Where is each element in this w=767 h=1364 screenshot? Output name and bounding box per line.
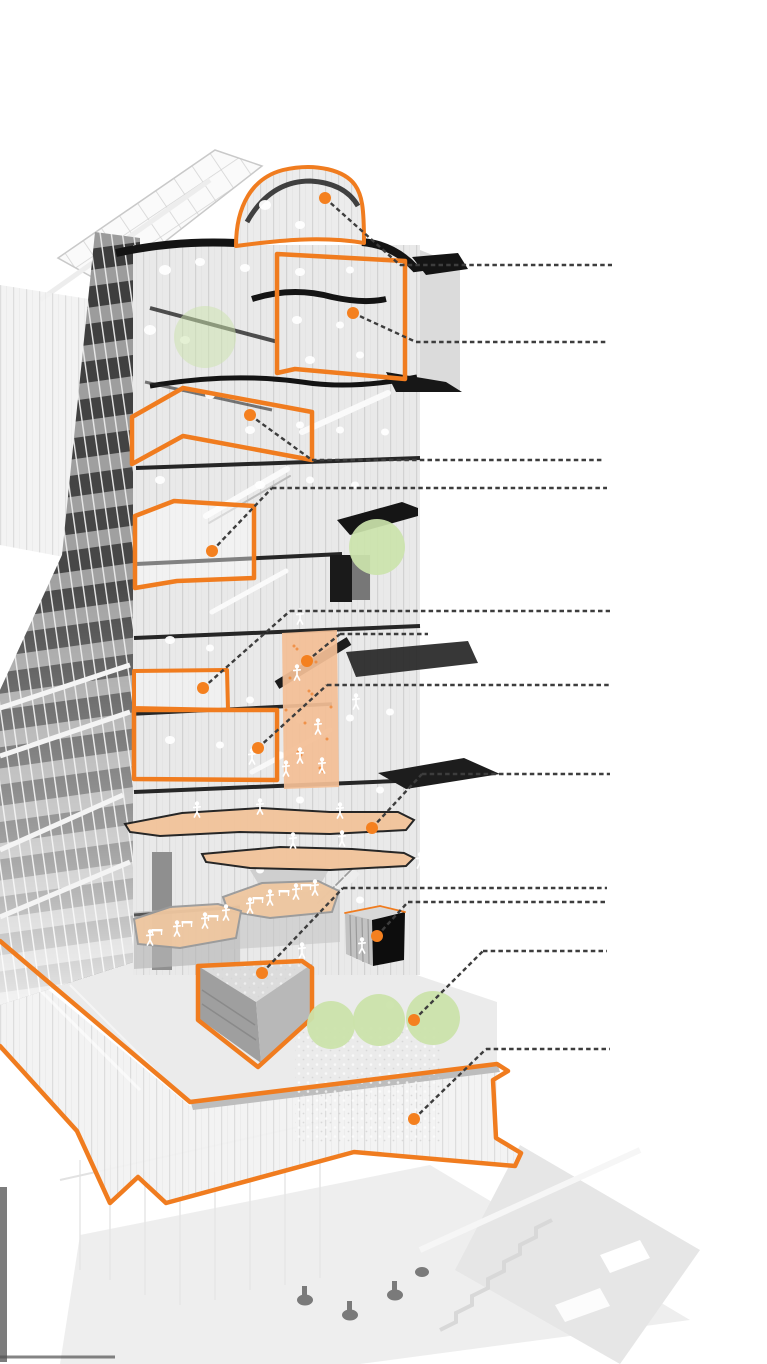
tint-running-track-lower	[202, 847, 414, 870]
highlight-small-room	[134, 670, 228, 710]
climbing-hold-speckle	[330, 706, 333, 709]
climbing-hold-speckle	[326, 738, 329, 741]
highlight-sky-room	[135, 501, 254, 588]
tree-mid-terrace	[349, 519, 405, 575]
callout-small-room-dot	[197, 682, 209, 694]
tint-climbing-wall	[282, 630, 339, 789]
callout-auditorium-wedge-dot	[256, 967, 268, 979]
climbing-hold-speckle	[315, 661, 318, 664]
callout-running-track-dot	[366, 822, 378, 834]
callout-terrace-band-dot	[244, 409, 256, 421]
climbing-hold-speckle	[311, 693, 314, 696]
climbing-hold-speckle	[296, 648, 299, 651]
edge-dark-bar	[0, 1187, 7, 1362]
tree-upper-translucent	[174, 306, 236, 368]
climbing-hold-speckle	[289, 677, 292, 680]
tree-roof-2	[353, 994, 405, 1046]
callout-dome-dot	[319, 192, 331, 204]
callout-black-box-dot	[371, 930, 383, 942]
tree-roof-1	[307, 1001, 355, 1049]
climbing-hold-speckle	[285, 709, 288, 712]
climbing-hold-speckle	[304, 722, 307, 725]
building-cutaway-illustration	[0, 0, 767, 1364]
callout-climbing-wall-dot	[301, 655, 313, 667]
callout-podium-glass-dot	[408, 1113, 420, 1125]
callout-roof-trees-dot	[408, 1014, 420, 1026]
callout-top-floor-box-dot	[347, 307, 359, 319]
callout-double-height-room-dot	[252, 742, 264, 754]
climbing-hold-speckle	[293, 645, 296, 648]
climbing-hold-speckle	[308, 690, 311, 693]
architectural-section-diagram	[0, 0, 767, 1364]
callout-sky-room-dot	[206, 545, 218, 557]
